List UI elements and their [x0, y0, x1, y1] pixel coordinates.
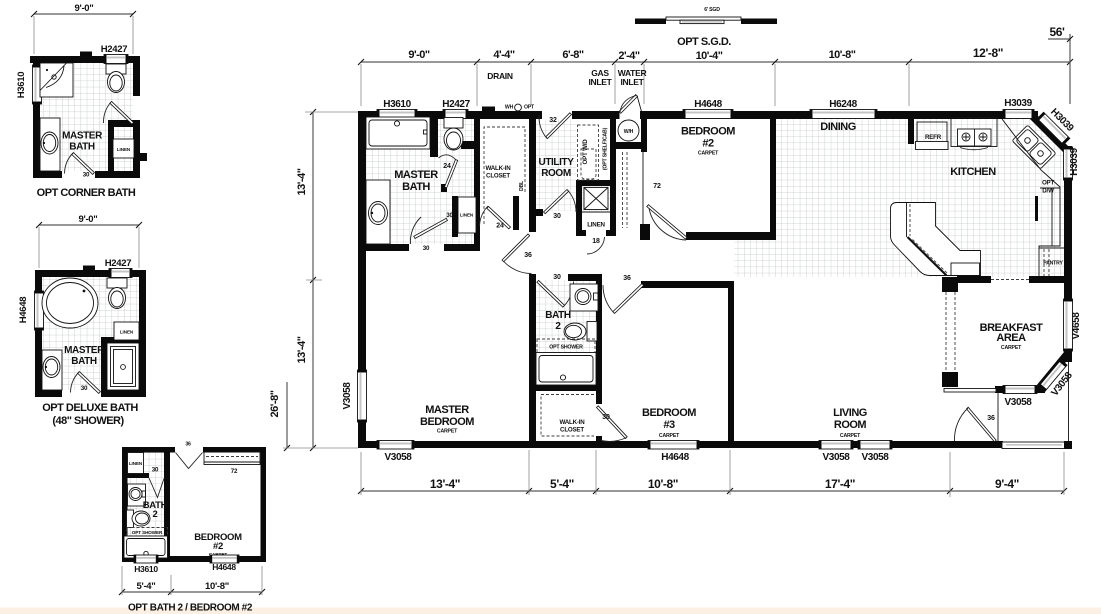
svg-text:(48" SHOWER): (48" SHOWER): [52, 415, 124, 427]
svg-text:H4648: H4648: [661, 452, 689, 463]
svg-text:H2427: H2427: [442, 99, 470, 110]
svg-text:9'-4": 9'-4": [995, 477, 1019, 491]
svg-text:AREA: AREA: [996, 332, 1026, 344]
svg-text:2: 2: [555, 321, 561, 332]
svg-text:MASTER: MASTER: [425, 404, 469, 416]
svg-text:36: 36: [623, 275, 631, 282]
svg-text:LINEN: LINEN: [587, 222, 605, 229]
svg-text:H4648: H4648: [212, 562, 236, 572]
svg-text:V3058: V3058: [862, 452, 890, 463]
svg-text:H2427: H2427: [105, 258, 132, 269]
svg-text:5'-4": 5'-4": [137, 581, 156, 592]
svg-text:DINING: DINING: [820, 121, 856, 133]
svg-text:OPT W/D: OPT W/D: [582, 139, 589, 165]
svg-text:H4648: H4648: [18, 297, 29, 324]
svg-text:72: 72: [231, 468, 238, 475]
svg-text:REFR: REFR: [925, 134, 942, 141]
svg-text:BATH: BATH: [69, 142, 95, 153]
svg-text:9'-0": 9'-0": [75, 3, 94, 14]
svg-text:H6248: H6248: [829, 99, 857, 110]
svg-text:CARPET: CARPET: [659, 433, 680, 439]
svg-text:H3039: H3039: [1004, 98, 1032, 109]
svg-text:DRAIN: DRAIN: [487, 71, 513, 81]
svg-text:CARPET: CARPET: [1001, 345, 1022, 351]
svg-text:72: 72: [653, 183, 661, 190]
svg-text:26'-8": 26'-8": [269, 390, 281, 417]
svg-text:INLET: INLET: [620, 77, 644, 87]
svg-text:LINEN: LINEN: [460, 213, 474, 218]
svg-text:CARPET: CARPET: [698, 151, 719, 157]
svg-text:MASTER: MASTER: [64, 345, 105, 356]
svg-text:5'-4": 5'-4": [550, 477, 574, 491]
svg-text:24: 24: [443, 163, 451, 170]
svg-text:OPT DELUXE BATH: OPT DELUXE BATH: [42, 402, 138, 414]
svg-text:H4648: H4648: [694, 99, 722, 110]
svg-text:ROOM: ROOM: [834, 419, 867, 431]
svg-text:MASTER: MASTER: [62, 131, 103, 142]
svg-text:LIVING: LIVING: [833, 407, 867, 419]
svg-text:WALK-IN: WALK-IN: [485, 165, 511, 172]
svg-text:BEDROOM: BEDROOM: [681, 126, 735, 138]
svg-text:2: 2: [153, 509, 158, 520]
svg-text:OPT BATH 2 / BEDROOM #2: OPT BATH 2 / BEDROOM #2: [128, 603, 253, 614]
svg-text:#2: #2: [213, 541, 223, 552]
svg-text:(OPT SHELF/CAB): (OPT SHELF/CAB): [603, 127, 609, 170]
svg-text:9'-0": 9'-0": [408, 49, 430, 61]
svg-text:BEDROOM: BEDROOM: [642, 407, 696, 419]
svg-text:9'-0": 9'-0": [79, 214, 98, 225]
svg-text:13'-4": 13'-4": [296, 168, 308, 195]
svg-text:BATH: BATH: [545, 310, 571, 321]
svg-text:13'-4": 13'-4": [430, 477, 460, 491]
svg-text:10'-8": 10'-8": [205, 581, 229, 592]
svg-text:36: 36: [524, 252, 532, 259]
svg-text:#2: #2: [702, 138, 714, 150]
svg-text:BATH: BATH: [71, 356, 97, 367]
svg-text:30: 30: [446, 212, 453, 219]
svg-text:WH: WH: [505, 105, 514, 111]
svg-text:INLET: INLET: [588, 77, 612, 87]
svg-text:WALK-IN: WALK-IN: [559, 419, 585, 426]
svg-text:CLOSET: CLOSET: [486, 173, 510, 180]
svg-text:H3039: H3039: [1069, 147, 1080, 175]
svg-text:V3058: V3058: [342, 382, 353, 410]
svg-text:17'-4": 17'-4": [825, 477, 855, 491]
svg-text:D/W: D/W: [1042, 188, 1054, 195]
svg-text:OPT SHOWER: OPT SHOWER: [132, 530, 163, 535]
svg-text:10'-8": 10'-8": [829, 49, 856, 61]
svg-text:OPT: OPT: [1042, 180, 1055, 187]
svg-text:#3: #3: [663, 419, 675, 431]
svg-text:KITCHEN: KITCHEN: [950, 166, 996, 178]
svg-text:32: 32: [549, 117, 557, 124]
svg-text:30: 30: [553, 274, 561, 281]
svg-text:13'-4": 13'-4": [296, 336, 308, 363]
svg-text:CARPET: CARPET: [840, 433, 861, 439]
svg-text:CARPET: CARPET: [437, 429, 458, 435]
svg-text:ROOM: ROOM: [541, 168, 571, 179]
svg-text:36: 36: [185, 442, 191, 448]
svg-text:30: 30: [152, 467, 159, 474]
svg-text:W/H: W/H: [624, 129, 634, 135]
svg-text:OPT: OPT: [524, 105, 535, 111]
svg-text:6'-8": 6'-8": [562, 49, 584, 61]
svg-text:36: 36: [987, 415, 995, 422]
svg-text:MASTER: MASTER: [394, 169, 438, 181]
svg-text:2'-4": 2'-4": [618, 50, 640, 62]
svg-text:30: 30: [553, 213, 561, 220]
svg-text:H3610: H3610: [134, 564, 158, 574]
svg-text:V3058: V3058: [385, 452, 413, 463]
svg-text:10'-8": 10'-8": [648, 477, 678, 491]
svg-text:18: 18: [592, 238, 600, 245]
svg-text:10'-4": 10'-4": [696, 50, 723, 62]
svg-text:4'-4": 4'-4": [493, 49, 515, 61]
svg-text:PANTRY: PANTRY: [1043, 261, 1063, 267]
svg-text:LINEN: LINEN: [120, 330, 134, 335]
svg-text:30: 30: [81, 385, 88, 392]
svg-text:30: 30: [83, 172, 90, 179]
svg-text:V3058: V3058: [1005, 397, 1033, 408]
svg-text:OPT S.G.D.: OPT S.G.D.: [677, 36, 731, 48]
svg-text:H3610: H3610: [16, 72, 27, 99]
svg-text:24: 24: [496, 223, 504, 230]
svg-text:56': 56': [1049, 25, 1065, 39]
svg-text:6' SGD: 6' SGD: [704, 7, 720, 13]
svg-text:12'-8": 12'-8": [973, 46, 1003, 60]
svg-text:H2427: H2427: [101, 44, 128, 55]
svg-text:BATH: BATH: [402, 181, 430, 193]
svg-text:V3058: V3058: [823, 452, 851, 463]
svg-text:30: 30: [423, 245, 430, 252]
svg-text:LINEN: LINEN: [117, 147, 131, 152]
svg-text:DBL: DBL: [519, 180, 525, 191]
svg-text:UTILITY: UTILITY: [539, 157, 575, 168]
svg-text:V4658: V4658: [1071, 312, 1082, 340]
svg-text:30: 30: [602, 414, 610, 421]
svg-text:OPT SHOWER: OPT SHOWER: [549, 345, 583, 351]
svg-text:CLOSET: CLOSET: [560, 427, 584, 434]
svg-text:BEDROOM: BEDROOM: [420, 416, 474, 428]
svg-text:LINEN: LINEN: [129, 461, 143, 466]
svg-text:H3610: H3610: [383, 99, 411, 110]
svg-text:OPT CORNER BATH: OPT CORNER BATH: [37, 187, 136, 199]
